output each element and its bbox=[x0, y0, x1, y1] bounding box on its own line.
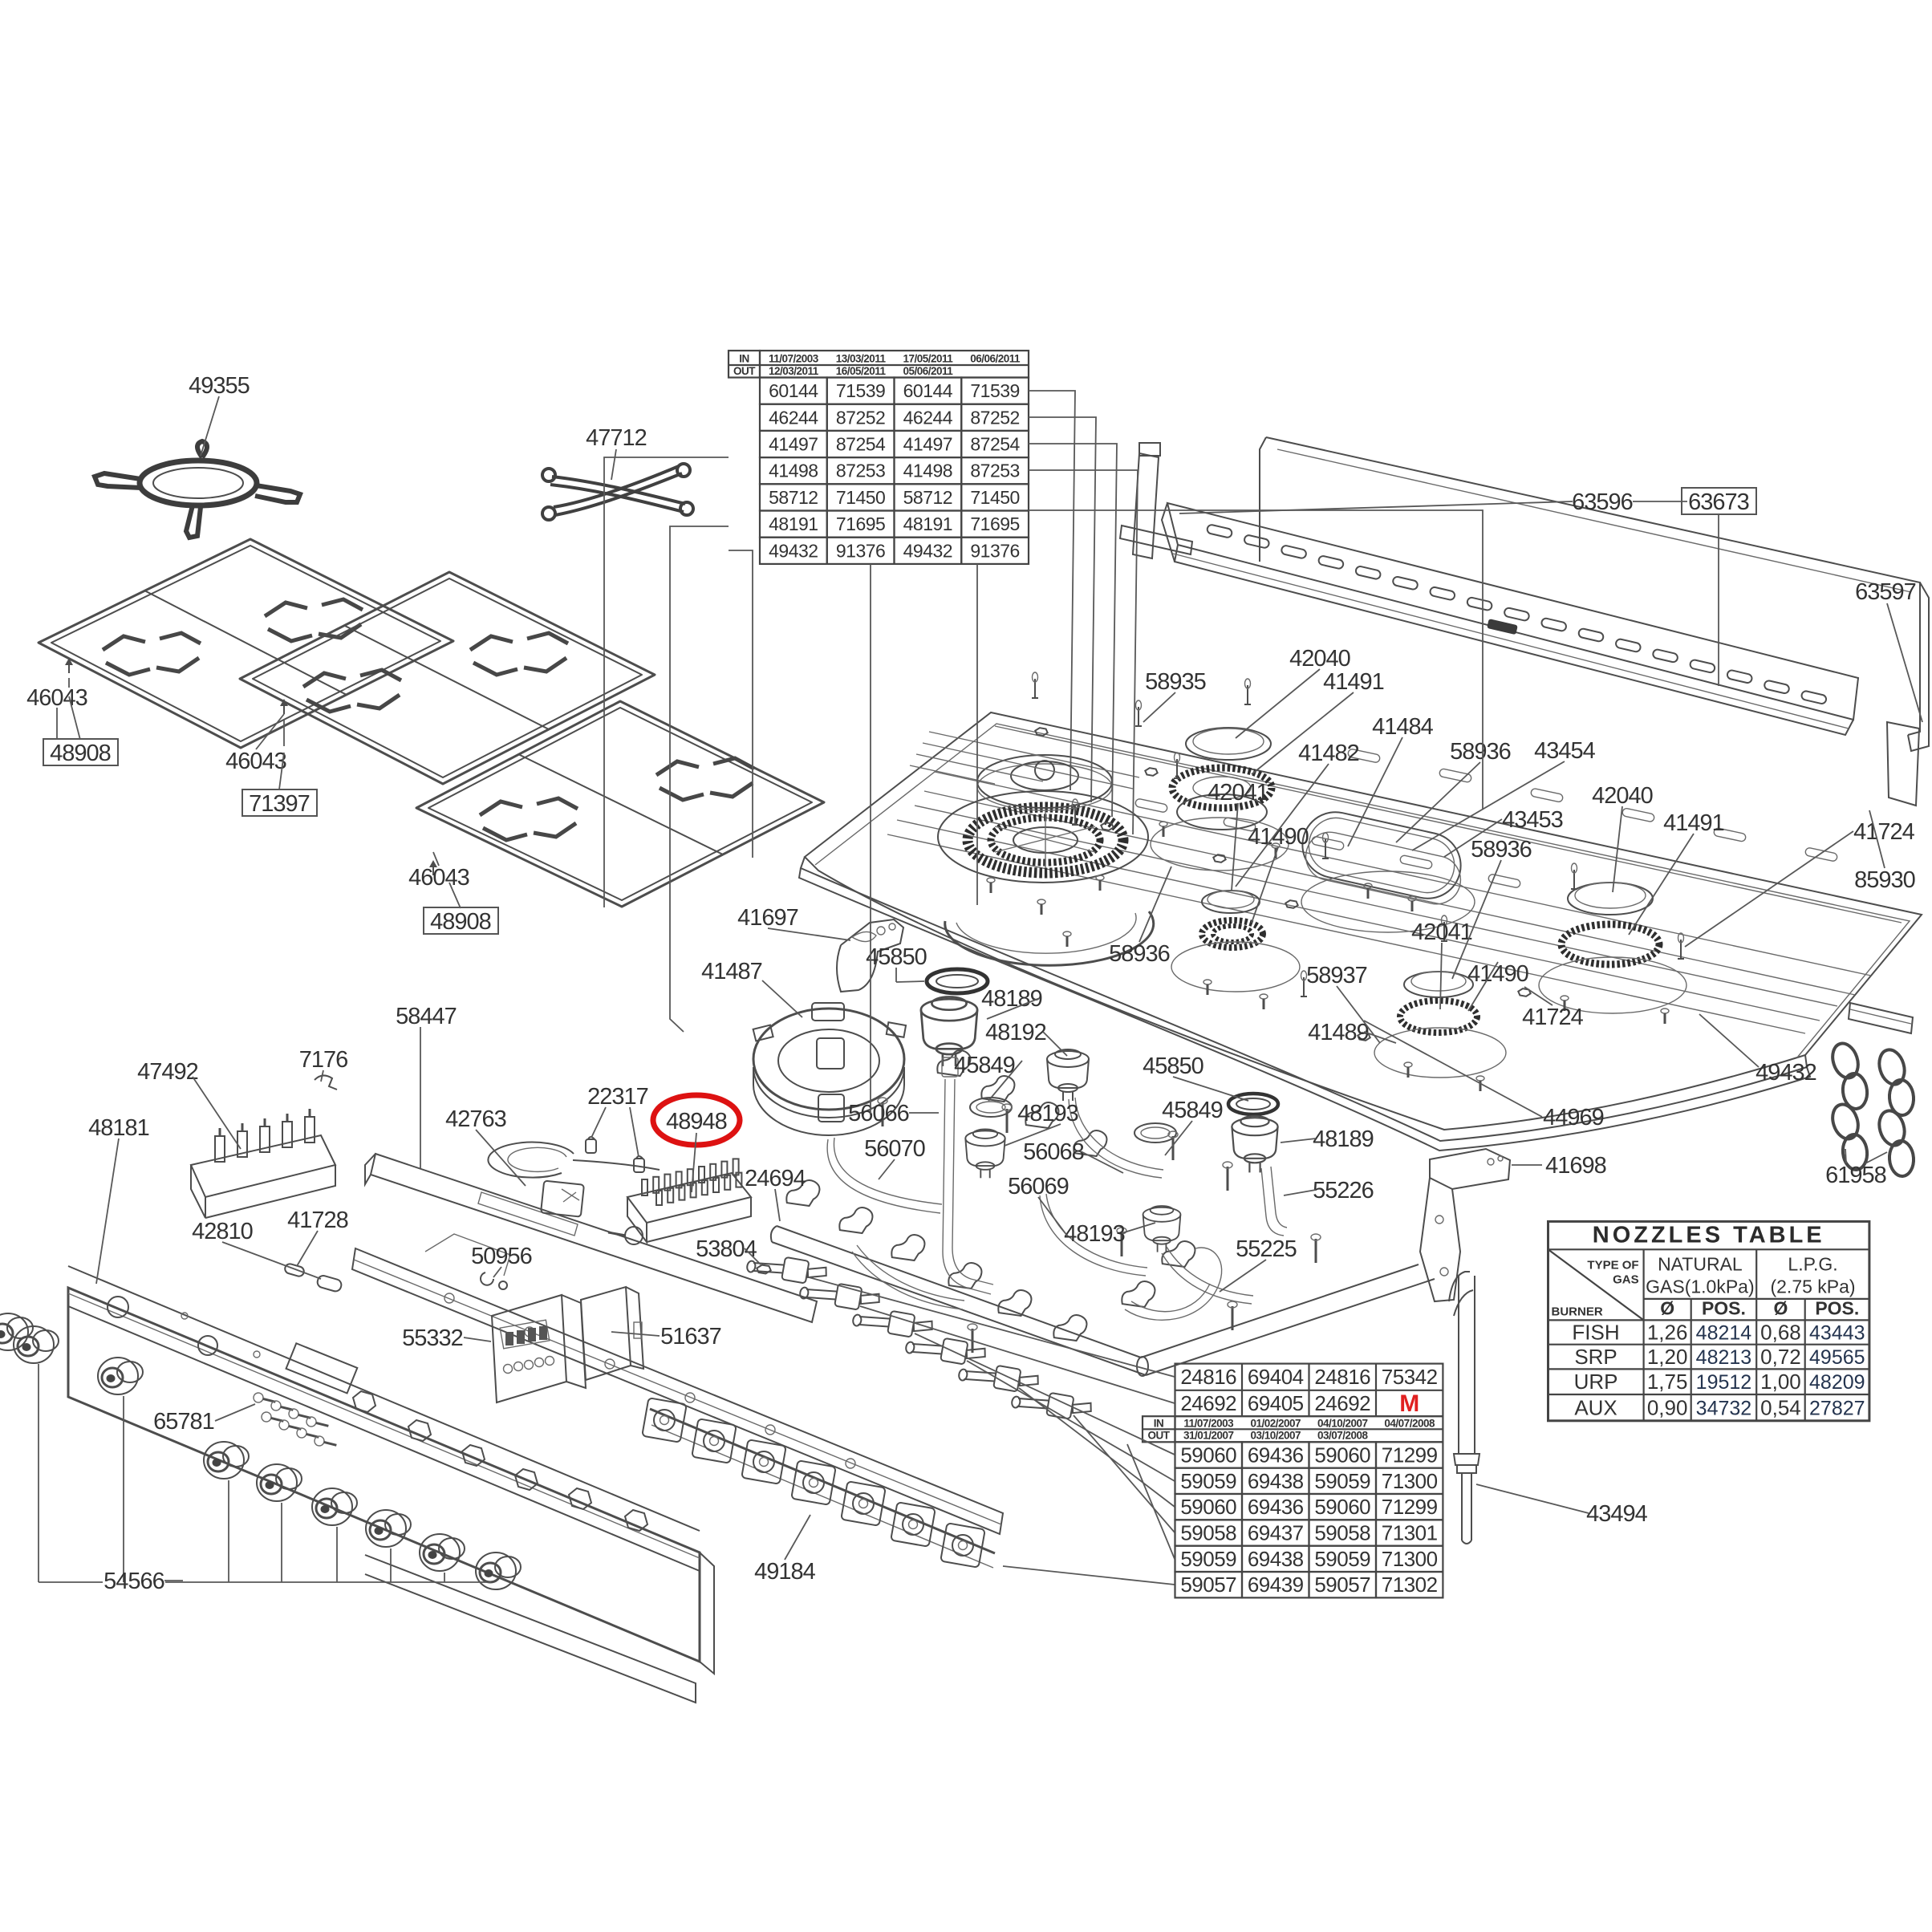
svg-text:1,26: 1,26 bbox=[1647, 1321, 1688, 1345]
svg-text:GAS: GAS bbox=[1613, 1272, 1639, 1286]
svg-text:71539: 71539 bbox=[836, 380, 885, 401]
svg-text:59060: 59060 bbox=[1314, 1495, 1370, 1519]
svg-text:41491: 41491 bbox=[1323, 669, 1384, 695]
svg-text:71450: 71450 bbox=[836, 487, 885, 508]
svg-text:41490: 41490 bbox=[1248, 824, 1309, 850]
svg-text:69404: 69404 bbox=[1248, 1365, 1304, 1389]
svg-text:49184: 49184 bbox=[754, 1559, 816, 1585]
svg-text:58936: 58936 bbox=[1471, 837, 1532, 862]
svg-text:87253: 87253 bbox=[836, 461, 885, 481]
svg-text:59060: 59060 bbox=[1314, 1443, 1370, 1467]
svg-text:56066: 56066 bbox=[848, 1101, 909, 1126]
svg-text:34732: 34732 bbox=[1696, 1397, 1752, 1419]
svg-text:46043: 46043 bbox=[26, 685, 87, 711]
svg-text:41498: 41498 bbox=[769, 461, 818, 481]
svg-text:69439: 69439 bbox=[1248, 1573, 1304, 1597]
svg-text:16/05/2011: 16/05/2011 bbox=[836, 365, 887, 377]
svg-text:41498: 41498 bbox=[903, 461, 952, 481]
svg-text:03/07/2008: 03/07/2008 bbox=[1317, 1429, 1369, 1441]
svg-text:OUT: OUT bbox=[1148, 1429, 1171, 1441]
svg-text:69438: 69438 bbox=[1248, 1469, 1304, 1493]
svg-text:AUX: AUX bbox=[1574, 1395, 1617, 1419]
svg-text:TYPE OF: TYPE OF bbox=[1587, 1258, 1638, 1272]
svg-text:47492: 47492 bbox=[137, 1059, 198, 1085]
svg-text:(2.75 kPa): (2.75 kPa) bbox=[1770, 1276, 1855, 1297]
svg-text:47712: 47712 bbox=[586, 425, 647, 451]
svg-text:06/06/2011: 06/06/2011 bbox=[970, 353, 1021, 365]
svg-text:71301: 71301 bbox=[1382, 1521, 1438, 1545]
svg-text:42041: 42041 bbox=[1411, 919, 1472, 945]
svg-text:41698: 41698 bbox=[1545, 1153, 1606, 1179]
svg-text:59059: 59059 bbox=[1180, 1547, 1236, 1571]
svg-text:85930: 85930 bbox=[1854, 867, 1915, 893]
svg-text:SRP: SRP bbox=[1574, 1345, 1617, 1369]
svg-text:56069: 56069 bbox=[1008, 1174, 1069, 1199]
svg-text:71539: 71539 bbox=[970, 380, 1019, 401]
svg-text:71695: 71695 bbox=[970, 513, 1019, 534]
svg-text:60144: 60144 bbox=[903, 380, 953, 401]
svg-text:41697: 41697 bbox=[737, 905, 798, 931]
svg-text:IN: IN bbox=[1154, 1417, 1164, 1429]
svg-text:55226: 55226 bbox=[1313, 1178, 1374, 1203]
svg-text:71450: 71450 bbox=[970, 487, 1019, 508]
svg-text:45850: 45850 bbox=[1143, 1053, 1203, 1079]
svg-text:41491: 41491 bbox=[1663, 810, 1724, 836]
svg-text:BURNER: BURNER bbox=[1552, 1305, 1603, 1318]
svg-text:45849: 45849 bbox=[954, 1053, 1015, 1078]
svg-text:31/01/2007: 31/01/2007 bbox=[1183, 1429, 1234, 1441]
svg-text:71695: 71695 bbox=[836, 513, 885, 534]
svg-text:M: M bbox=[1399, 1390, 1419, 1417]
svg-text:11/07/2003: 11/07/2003 bbox=[769, 353, 819, 365]
svg-text:27827: 27827 bbox=[1809, 1397, 1865, 1419]
svg-text:48193: 48193 bbox=[1017, 1101, 1078, 1126]
svg-text:41724: 41724 bbox=[1522, 1005, 1584, 1030]
svg-text:87252: 87252 bbox=[836, 407, 885, 428]
svg-text:1,20: 1,20 bbox=[1647, 1345, 1688, 1369]
svg-text:69437: 69437 bbox=[1248, 1521, 1304, 1545]
svg-text:04/10/2007: 04/10/2007 bbox=[1317, 1417, 1368, 1429]
svg-text:60144: 60144 bbox=[769, 380, 818, 401]
svg-text:55332: 55332 bbox=[402, 1325, 463, 1351]
svg-text:59057: 59057 bbox=[1314, 1573, 1370, 1597]
svg-text:53804: 53804 bbox=[696, 1236, 757, 1262]
svg-text:59059: 59059 bbox=[1314, 1547, 1370, 1571]
svg-text:45850: 45850 bbox=[866, 944, 927, 970]
svg-text:91376: 91376 bbox=[836, 540, 885, 561]
svg-text:12/03/2011: 12/03/2011 bbox=[769, 365, 819, 377]
svg-text:48189: 48189 bbox=[981, 986, 1042, 1012]
svg-text:71300: 71300 bbox=[1382, 1469, 1438, 1493]
svg-text:49432: 49432 bbox=[769, 540, 818, 561]
svg-text:54566: 54566 bbox=[103, 1569, 164, 1594]
svg-text:URP: URP bbox=[1574, 1370, 1618, 1394]
svg-text:43454: 43454 bbox=[1534, 738, 1596, 764]
svg-text:56070: 56070 bbox=[864, 1136, 925, 1162]
svg-text:41487: 41487 bbox=[701, 959, 762, 984]
svg-text:87253: 87253 bbox=[970, 461, 1019, 481]
svg-text:87254: 87254 bbox=[970, 434, 1020, 455]
svg-text:48192: 48192 bbox=[985, 1020, 1046, 1045]
svg-text:24692: 24692 bbox=[1180, 1391, 1236, 1415]
svg-text:69405: 69405 bbox=[1248, 1391, 1304, 1415]
svg-text:69438: 69438 bbox=[1248, 1547, 1304, 1571]
svg-text:59060: 59060 bbox=[1180, 1443, 1236, 1467]
svg-text:63597: 63597 bbox=[1855, 579, 1916, 605]
svg-text:FISH: FISH bbox=[1572, 1321, 1619, 1345]
svg-text:7176: 7176 bbox=[299, 1047, 348, 1073]
svg-text:48189: 48189 bbox=[1313, 1126, 1374, 1152]
svg-text:42810: 42810 bbox=[192, 1219, 253, 1244]
svg-text:63596: 63596 bbox=[1572, 489, 1633, 515]
svg-text:48181: 48181 bbox=[88, 1115, 149, 1141]
svg-text:42040: 42040 bbox=[1289, 646, 1350, 672]
svg-text:71299: 71299 bbox=[1382, 1495, 1438, 1519]
svg-text:48191: 48191 bbox=[903, 513, 952, 534]
svg-text:59058: 59058 bbox=[1314, 1521, 1370, 1545]
svg-text:IN: IN bbox=[739, 353, 749, 365]
svg-text:43443: 43443 bbox=[1809, 1322, 1865, 1345]
svg-text:48213: 48213 bbox=[1696, 1346, 1752, 1369]
svg-text:48948: 48948 bbox=[666, 1109, 727, 1134]
svg-text:42041: 42041 bbox=[1207, 780, 1268, 806]
svg-text:0,72: 0,72 bbox=[1760, 1345, 1801, 1369]
svg-text:NATURAL: NATURAL bbox=[1658, 1253, 1743, 1274]
svg-text:46244: 46244 bbox=[903, 407, 953, 428]
svg-text:POS.: POS. bbox=[1702, 1297, 1746, 1318]
svg-text:41484: 41484 bbox=[1372, 714, 1434, 740]
svg-text:44969: 44969 bbox=[1543, 1105, 1604, 1130]
svg-text:58936: 58936 bbox=[1109, 941, 1170, 967]
svg-text:41724: 41724 bbox=[1853, 819, 1915, 845]
svg-text:45849: 45849 bbox=[1162, 1098, 1223, 1123]
svg-text:61958: 61958 bbox=[1825, 1163, 1886, 1188]
svg-text:48209: 48209 bbox=[1809, 1371, 1865, 1394]
svg-text:59059: 59059 bbox=[1180, 1469, 1236, 1493]
svg-text:69436: 69436 bbox=[1248, 1443, 1304, 1467]
svg-text:48214: 48214 bbox=[1696, 1322, 1752, 1345]
svg-text:43494: 43494 bbox=[1586, 1501, 1648, 1527]
svg-text:59057: 59057 bbox=[1180, 1573, 1236, 1597]
svg-text:Ø: Ø bbox=[1774, 1297, 1788, 1318]
svg-text:49565: 49565 bbox=[1809, 1346, 1865, 1369]
svg-text:58935: 58935 bbox=[1145, 669, 1206, 695]
svg-text:65781: 65781 bbox=[153, 1409, 214, 1435]
svg-text:42040: 42040 bbox=[1592, 783, 1653, 809]
svg-text:NOZZLES TABLE: NOZZLES TABLE bbox=[1593, 1222, 1825, 1248]
svg-text:49432: 49432 bbox=[1755, 1060, 1816, 1086]
svg-text:1,75: 1,75 bbox=[1647, 1370, 1688, 1394]
svg-text:48191: 48191 bbox=[769, 513, 818, 534]
svg-text:0,90: 0,90 bbox=[1647, 1395, 1688, 1419]
svg-text:48908: 48908 bbox=[50, 741, 111, 766]
svg-text:0,68: 0,68 bbox=[1760, 1321, 1801, 1345]
svg-text:41728: 41728 bbox=[287, 1207, 348, 1233]
svg-text:91376: 91376 bbox=[970, 540, 1019, 561]
svg-text:49432: 49432 bbox=[903, 540, 952, 561]
svg-text:41482: 41482 bbox=[1298, 741, 1359, 766]
svg-text:50956: 50956 bbox=[471, 1244, 532, 1269]
svg-text:46043: 46043 bbox=[225, 749, 286, 774]
svg-text:58937: 58937 bbox=[1306, 963, 1367, 988]
svg-text:59060: 59060 bbox=[1180, 1495, 1236, 1519]
svg-text:24692: 24692 bbox=[1314, 1391, 1370, 1415]
svg-text:01/02/2007: 01/02/2007 bbox=[1250, 1417, 1301, 1429]
svg-text:04/07/2008: 04/07/2008 bbox=[1384, 1417, 1435, 1429]
svg-text:1,00: 1,00 bbox=[1760, 1370, 1801, 1394]
svg-text:41489: 41489 bbox=[1308, 1020, 1369, 1045]
svg-text:24816: 24816 bbox=[1314, 1365, 1370, 1389]
svg-text:87254: 87254 bbox=[836, 434, 886, 455]
svg-text:43453: 43453 bbox=[1502, 807, 1563, 833]
svg-text:71299: 71299 bbox=[1382, 1443, 1438, 1467]
svg-text:GAS(1.0kPa): GAS(1.0kPa) bbox=[1646, 1276, 1755, 1297]
svg-text:59058: 59058 bbox=[1180, 1521, 1236, 1545]
svg-text:05/06/2011: 05/06/2011 bbox=[903, 365, 953, 377]
svg-text:55225: 55225 bbox=[1236, 1236, 1297, 1262]
svg-text:71302: 71302 bbox=[1382, 1573, 1438, 1597]
svg-text:48193: 48193 bbox=[1064, 1221, 1125, 1247]
svg-text:Ø: Ø bbox=[1660, 1297, 1674, 1318]
svg-text:56068: 56068 bbox=[1023, 1139, 1084, 1165]
svg-text:58712: 58712 bbox=[903, 487, 952, 508]
svg-text:41490: 41490 bbox=[1467, 961, 1528, 987]
svg-text:46244: 46244 bbox=[769, 407, 818, 428]
svg-text:41497: 41497 bbox=[769, 434, 818, 455]
svg-text:49355: 49355 bbox=[189, 373, 250, 399]
svg-text:19512: 19512 bbox=[1696, 1371, 1752, 1394]
svg-text:POS.: POS. bbox=[1815, 1297, 1859, 1318]
svg-text:51637: 51637 bbox=[660, 1324, 721, 1350]
svg-text:75342: 75342 bbox=[1382, 1365, 1438, 1389]
svg-text:11/07/2003: 11/07/2003 bbox=[1183, 1417, 1234, 1429]
svg-text:03/10/2007: 03/10/2007 bbox=[1250, 1429, 1301, 1441]
svg-text:OUT: OUT bbox=[733, 365, 756, 377]
svg-text:24816: 24816 bbox=[1180, 1365, 1236, 1389]
svg-text:71397: 71397 bbox=[249, 791, 310, 817]
svg-text:L.P.G.: L.P.G. bbox=[1788, 1253, 1837, 1274]
svg-text:58447: 58447 bbox=[396, 1004, 457, 1029]
svg-text:17/05/2011: 17/05/2011 bbox=[903, 353, 953, 365]
svg-text:24694: 24694 bbox=[745, 1166, 806, 1191]
svg-text:87252: 87252 bbox=[970, 407, 1019, 428]
svg-text:69436: 69436 bbox=[1248, 1495, 1304, 1519]
svg-text:41497: 41497 bbox=[903, 434, 952, 455]
svg-text:59059: 59059 bbox=[1314, 1469, 1370, 1493]
svg-text:13/03/2011: 13/03/2011 bbox=[836, 353, 887, 365]
svg-text:22317: 22317 bbox=[587, 1084, 648, 1110]
svg-text:71300: 71300 bbox=[1382, 1547, 1438, 1571]
svg-text:0,54: 0,54 bbox=[1760, 1395, 1801, 1419]
svg-text:63673: 63673 bbox=[1688, 489, 1749, 515]
svg-text:58936: 58936 bbox=[1450, 739, 1511, 765]
svg-text:46043: 46043 bbox=[408, 865, 469, 891]
svg-text:58712: 58712 bbox=[769, 487, 818, 508]
svg-text:48908: 48908 bbox=[430, 909, 491, 935]
svg-text:42763: 42763 bbox=[445, 1106, 506, 1132]
